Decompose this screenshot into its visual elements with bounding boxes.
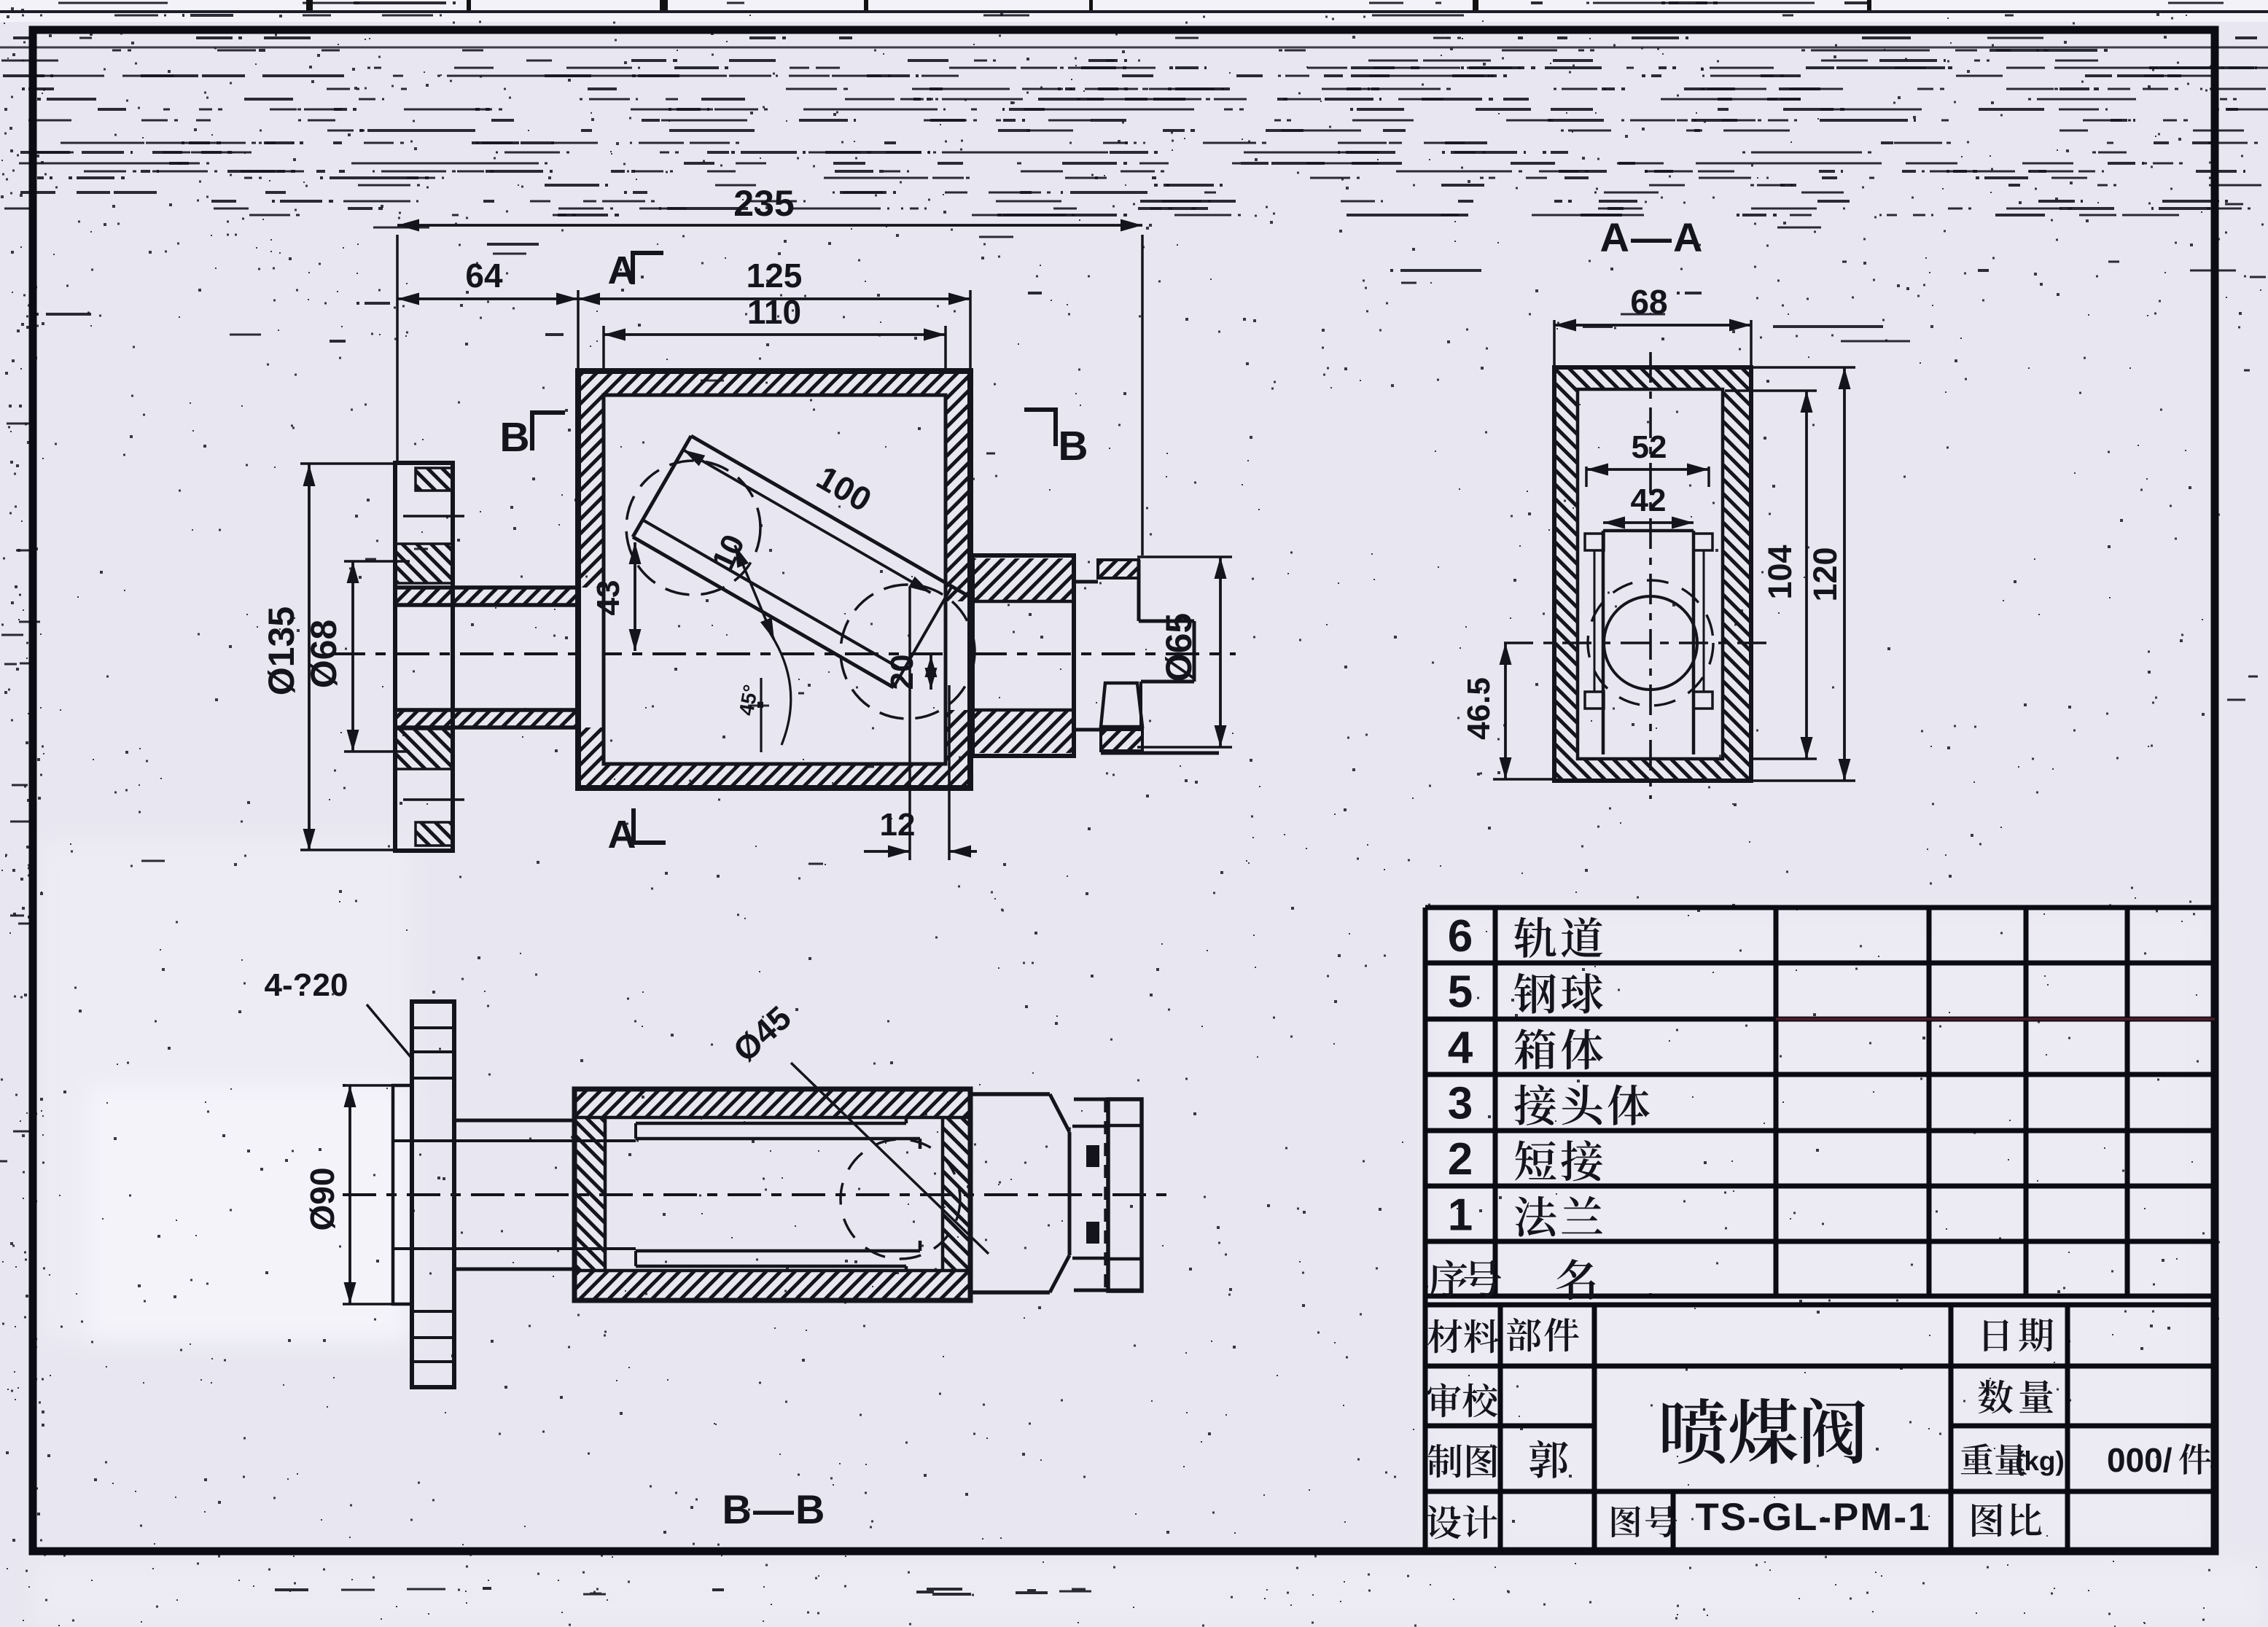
svg-text:68: 68 [1630,283,1667,321]
svg-text:Ø68: Ø68 [303,620,344,689]
svg-text:125: 125 [747,257,803,294]
svg-text:A—A: A—A [1600,214,1704,260]
svg-text:20: 20 [884,655,920,690]
svg-text:B—B: B—B [722,1486,827,1532]
svg-text:B: B [499,414,529,461]
svg-text:Ø135: Ø135 [261,606,302,695]
svg-text:1: 1 [1448,1190,1473,1241]
svg-text:104: 104 [1761,545,1799,599]
svg-text:4-?20: 4-?20 [265,967,348,1003]
svg-text:46.5: 46.5 [1461,677,1497,740]
svg-text:2: 2 [1448,1134,1473,1185]
svg-text:000/: 000/ [2107,1441,2172,1479]
svg-text:3: 3 [1448,1079,1473,1129]
svg-text:43: 43 [591,580,626,616]
svg-text:5: 5 [1448,967,1473,1018]
svg-text:6: 6 [1448,911,1473,961]
svg-text:Ø90: Ø90 [303,1168,341,1231]
svg-text:TS-GL-PM-1: TS-GL-PM-1 [1695,1496,1930,1539]
svg-text:4: 4 [1448,1023,1473,1073]
svg-text:120: 120 [1807,547,1844,601]
svg-text:12: 12 [880,807,916,843]
svg-text:42: 42 [1631,483,1667,518]
svg-text:52: 52 [1632,429,1667,465]
svg-text:235: 235 [733,183,794,224]
svg-text:Ø65: Ø65 [1158,613,1199,682]
svg-text:110: 110 [747,293,801,331]
svg-text:B: B [1058,423,1088,469]
svg-text:64: 64 [465,257,503,294]
svg-text:(kg): (kg) [2015,1446,2065,1476]
